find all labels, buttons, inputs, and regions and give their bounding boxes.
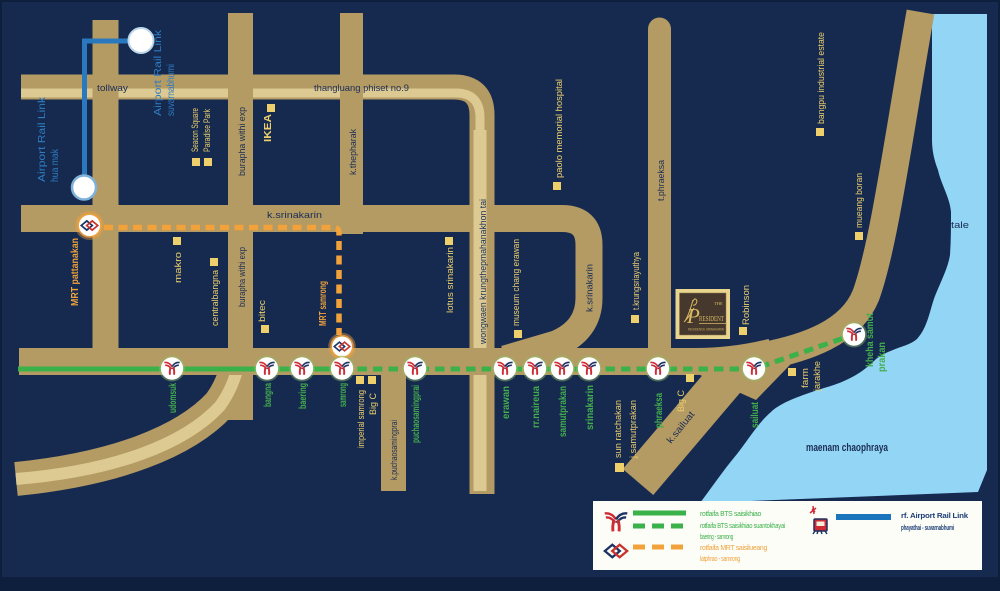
svg-text:samrong: samrong [338,383,349,407]
svg-text:rf. Airport Rail Link: rf. Airport Rail Link [901,513,968,520]
svg-text:bitec: bitec [257,299,267,322]
svg-text:Big C: Big C [676,390,686,412]
svg-text:rotfaifa BTS saisikhiao suanto: rotfaifa BTS saisikhiao suantokhayai [700,523,786,530]
svg-text:Airport Rail Link: Airport Rail Link [153,29,164,116]
svg-text:k.puchaosamingprai: k.puchaosamingprai [389,420,400,480]
svg-text:rr.naireua: rr.naireua [531,386,542,428]
svg-text:k.srinakarin: k.srinakarin [585,264,596,312]
svg-text:hua mak: hua mak [50,148,61,182]
svg-text:baering - samrong: baering - samrong [700,534,733,541]
svg-text:imperial samrong: imperial samrong [356,390,366,448]
svg-text:mueang boran: mueang boran [854,173,864,228]
svg-text:erawan: erawan [501,386,512,419]
svg-text:thangluang phiset no.9: thangluang phiset no.9 [314,83,409,94]
svg-text:suvarnabhumi: suvarnabhumi [166,64,177,116]
svg-text:museum chang erawan: museum chang erawan [511,239,521,326]
svg-text:sun ratchakan: sun ratchakan [613,400,623,458]
svg-text:latphrao - samrong: latphrao - samrong [700,556,740,563]
svg-text:paolo memorial hospital: paolo memorial hospital [554,79,564,178]
svg-text:kheha samut: kheha samut [865,312,876,367]
svg-text:wongwaen krungthepmahanakhon t: wongwaen krungthepmahanakhon tai [478,199,489,345]
svg-text:puchaosamingprai: puchaosamingprai [411,385,422,443]
svg-text:tale: tale [951,220,969,231]
svg-text:Airport Rail Link: Airport Rail Link [37,96,48,182]
svg-text:t.krungsriayuthya: t.krungsriayuthya [631,252,641,310]
svg-text:burapha withi exp: burapha withi exp [237,107,248,176]
svg-text:burapha withi exp: burapha withi exp [237,247,248,307]
svg-text:Seacon Square: Seacon Square [190,108,200,152]
svg-text:RESIDENCE SRINAKARIN: RESIDENCE SRINAKARIN [688,328,724,332]
svg-text:MRT samrong: MRT samrong [317,281,329,326]
svg-text:jarakhe: jarakhe [812,361,822,392]
svg-text:Big C: Big C [368,393,378,415]
svg-text:centralbangna: centralbangna [210,270,220,326]
svg-text:t.phraeksa: t.phraeksa [656,159,667,201]
svg-text:lotus srinakarin: lotus srinakarin [445,247,455,313]
svg-text:srinakarin: srinakarin [585,385,596,430]
svg-text:IKEA: IKEA [262,114,274,142]
svg-text:udomsuk: udomsuk [168,383,179,413]
svg-text:prakan: prakan [877,342,888,372]
svg-text:sailuat: sailuat [750,401,761,428]
svg-text:baering: baering [298,383,309,409]
svg-text:k.thepharak: k.thepharak [348,129,359,175]
svg-text:rotfaifa MRT saisilueang: rotfaifa MRT saisilueang [700,545,767,552]
svg-text:THE: THE [714,301,723,306]
svg-text:Paradise Park: Paradise Park [202,109,212,152]
svg-text:tollway: tollway [97,83,128,94]
svg-text:k.srinakarin: k.srinakarin [267,210,322,221]
svg-text:j.samutprakan: j.samutprakan [628,400,638,459]
svg-text:P: P [686,304,700,328]
svg-text:phayathai - suvarnabhumi: phayathai - suvarnabhumi [901,525,954,532]
svg-text:MRT pattanakan: MRT pattanakan [69,238,81,306]
svg-text:rotfaifa BTS saisikhiao: rotfaifa BTS saisikhiao [700,511,761,518]
svg-text:maenam chaophraya: maenam chaophraya [806,442,889,454]
svg-text:makro: makro [173,252,183,283]
svg-text:bangna: bangna [263,383,274,407]
svg-text:Robinson: Robinson [741,285,751,325]
svg-text:farm: farm [800,368,810,388]
svg-text:phraeksa: phraeksa [654,393,665,428]
svg-text:bangpu industrial estate: bangpu industrial estate [816,32,826,124]
svg-text:samutprakan: samutprakan [558,386,569,437]
svg-text:RESIDENT: RESIDENT [699,316,725,323]
